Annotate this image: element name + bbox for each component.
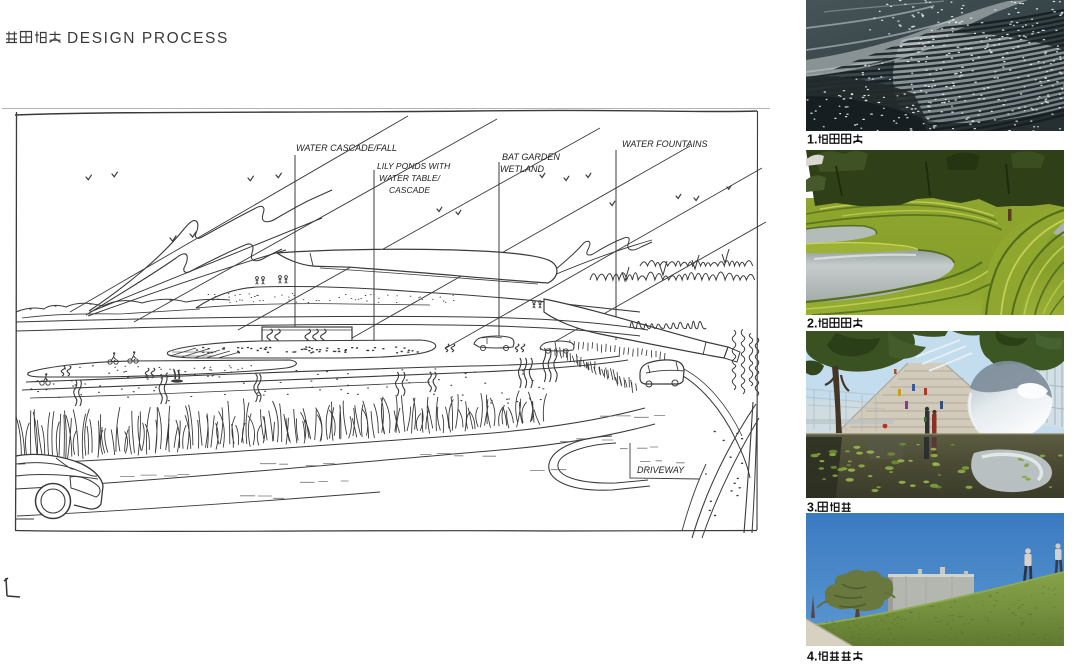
svg-text:WATER FOUNTAINS: WATER FOUNTAINS xyxy=(622,139,708,149)
svg-text:BAT GARDEN: BAT GARDEN xyxy=(502,152,560,162)
svg-text:WATER CASCADE/FALL: WATER CASCADE/FALL xyxy=(296,143,397,153)
svg-text:2.: 2. xyxy=(807,317,817,331)
svg-text:WATER TABLE/: WATER TABLE/ xyxy=(379,173,442,183)
svg-text:DRIVEWAY: DRIVEWAY xyxy=(637,465,685,475)
svg-text:LILY PONDS WITH: LILY PONDS WITH xyxy=(377,161,451,171)
svg-text:1.: 1. xyxy=(807,133,817,147)
svg-text:WETLAND: WETLAND xyxy=(500,164,545,174)
svg-text:CASCADE: CASCADE xyxy=(389,185,430,195)
svg-text:4.: 4. xyxy=(807,650,817,664)
